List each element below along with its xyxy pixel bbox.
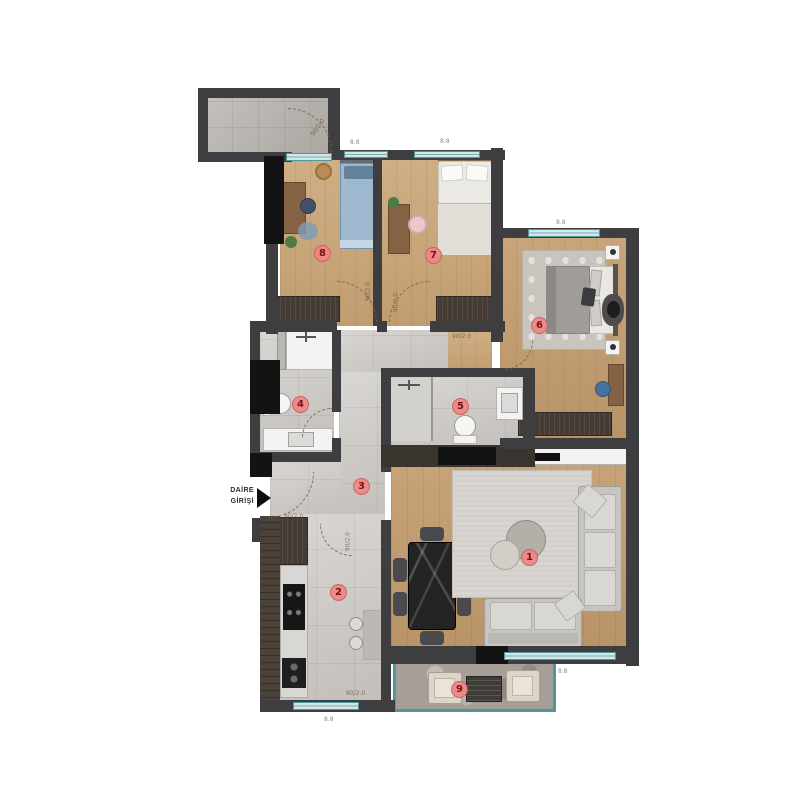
lamp	[610, 249, 616, 255]
dining-chair	[393, 592, 407, 616]
shaft	[250, 360, 280, 414]
plant	[285, 236, 297, 248]
wall	[332, 330, 341, 412]
desk-chair	[300, 198, 316, 214]
lamp	[610, 344, 616, 350]
accent-pillow	[581, 287, 596, 307]
sofa-backrest	[488, 633, 578, 644]
shower-arm-icon	[408, 380, 410, 390]
sink	[501, 393, 518, 413]
room-marker-living-room: 1	[521, 549, 538, 566]
toilet-bowl	[454, 415, 476, 437]
wall	[198, 88, 208, 162]
door-size-label: 90/2.0	[365, 277, 372, 307]
room-marker-bathroom: 4	[292, 396, 309, 413]
dining-chair	[420, 631, 444, 645]
sofa-cushion	[490, 602, 532, 630]
wall	[430, 321, 505, 332]
room-marker-balcony: 9	[451, 681, 468, 698]
entrance-arrow-icon	[257, 488, 271, 508]
window-size-label: 8.8	[350, 139, 360, 146]
room-marker-hall: 3	[353, 478, 370, 495]
dining-chair	[420, 527, 444, 541]
coffee-table-small	[490, 540, 520, 570]
window	[293, 702, 359, 710]
window-size-label: 8.8	[558, 668, 568, 675]
room-marker-kitchen: 2	[330, 584, 347, 601]
room-marker-master-bedroom: 6	[531, 317, 548, 334]
wardrobe	[274, 296, 340, 322]
bar-stool	[349, 617, 363, 631]
wall	[523, 368, 535, 447]
armchair-seat	[607, 301, 620, 318]
tall-cabinet	[276, 517, 308, 565]
wall	[373, 158, 382, 326]
door-size-label: 90/2.0	[345, 527, 352, 557]
door-size-label: 90/2.0	[452, 333, 471, 340]
armchair-cushion	[512, 676, 533, 696]
bar-stool	[349, 636, 363, 650]
window-size-label: 8.8	[440, 138, 450, 145]
window-size-label: 8.8	[324, 716, 334, 723]
wardrobe	[436, 296, 492, 322]
wall	[198, 88, 340, 98]
bed-pillow	[440, 164, 463, 181]
bed-pillow	[465, 164, 488, 182]
vanity-chair	[408, 215, 427, 234]
wall	[377, 321, 387, 332]
media-wall-black	[438, 447, 496, 465]
desk	[388, 204, 410, 254]
door-size-label: 60/2.0	[346, 690, 365, 697]
desk-chair	[595, 381, 611, 397]
wall	[381, 520, 391, 702]
kitchen-sink	[282, 658, 306, 688]
sofa-cushion	[584, 532, 616, 568]
door-size-label: 90/2.0	[393, 288, 400, 318]
entrance-label-line2: GİRİŞİ	[206, 496, 254, 507]
dining-chair	[393, 558, 407, 582]
structural-column	[264, 156, 284, 244]
window	[344, 151, 388, 158]
wall	[491, 148, 503, 342]
hall-floor	[339, 372, 385, 522]
balcony-table	[466, 676, 502, 702]
room-marker-bedroom-2: 7	[425, 247, 442, 264]
pouf	[315, 163, 332, 180]
plant	[388, 197, 399, 208]
window-size-label: 8.8	[556, 219, 566, 226]
door-size-label: 90/2.0	[284, 513, 303, 520]
entrance-label: DAİRE GİRİŞİ	[206, 485, 254, 507]
window	[528, 229, 600, 237]
toilet-tank	[453, 435, 477, 444]
room-marker-bedroom-3: 8	[314, 245, 331, 262]
bed-duvet	[438, 203, 492, 255]
shower-arm-icon	[305, 332, 307, 342]
wall	[500, 438, 639, 449]
balcony-door-window	[286, 153, 332, 161]
floor-plan: 1 2 3 4 5 6 7 8 9 DAİRE GİRİŞİ 90/2.0 90…	[0, 0, 800, 800]
kitchen-side-wall	[260, 516, 280, 712]
window	[504, 652, 616, 660]
dining-table	[408, 542, 456, 630]
wall	[381, 368, 533, 377]
round-rug	[298, 222, 318, 240]
entrance-label-line1: DAİRE	[206, 485, 254, 496]
wall	[250, 321, 337, 332]
window	[414, 151, 480, 158]
cooktop	[283, 584, 305, 630]
sofa-cushion	[584, 570, 616, 606]
room-marker-ensuite-bathroom: 5	[452, 398, 469, 415]
